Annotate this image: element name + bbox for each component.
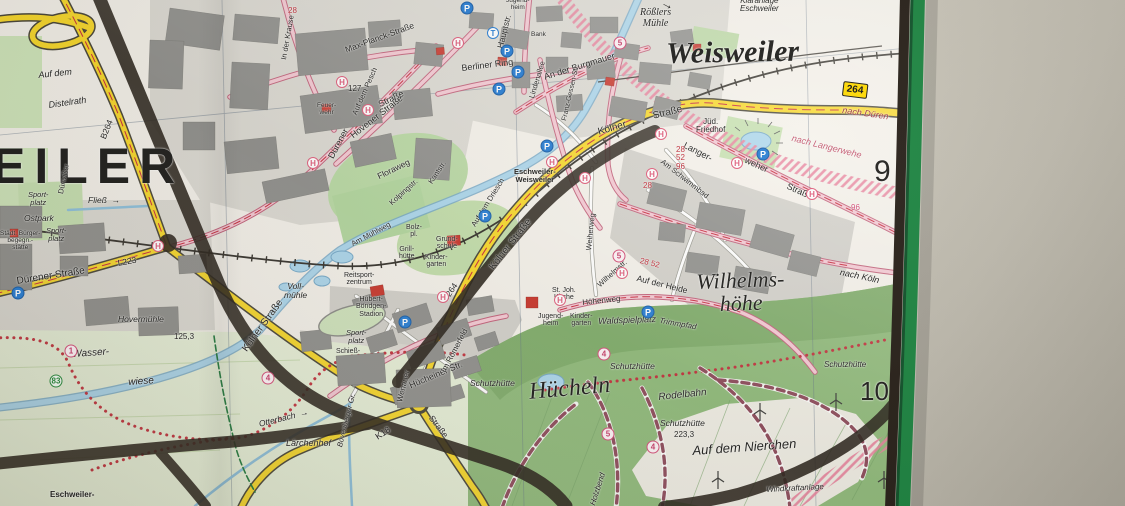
parking-icon: P [541, 140, 554, 153]
road-number-badge: 264 [842, 81, 868, 99]
grid-number-9: 9 [874, 156, 891, 188]
map-label: Langer- [682, 141, 714, 163]
map-label: Hücheiner Str. [408, 360, 464, 391]
parking-icon: P [399, 316, 412, 329]
parking-icon: P [493, 83, 506, 96]
map-label: Eschweiler- [50, 491, 94, 499]
route-badge: 4 [598, 348, 611, 361]
map-label: Rodelbahn [658, 388, 707, 403]
taxi-icon: T [487, 27, 499, 39]
photo-of-street-map: Weisweiler EILER Wilhelms- höhe Hücheln … [0, 0, 1125, 506]
bus-stop-icon: H [616, 267, 628, 279]
bus-stop-icon: H [152, 240, 164, 252]
map-label: Jüd. Friedhof [696, 118, 725, 135]
route-badge: 5 [614, 37, 627, 50]
map-label: Holzbend [589, 472, 607, 506]
map-label: Fließ → [88, 196, 120, 205]
map-label: Höhenweg [582, 295, 621, 307]
route-badge: 5 [602, 428, 615, 441]
map-label: Jugend- heim [538, 313, 563, 328]
route-badge-green: 83 [50, 375, 63, 388]
map-label: Schieß- [336, 348, 360, 355]
map-label: 28 [643, 182, 652, 190]
grid-number-10: 10 [860, 378, 889, 405]
map-label: 28 52 [639, 257, 660, 270]
map-label: Lärchenhof [286, 439, 331, 448]
map-label: 127 [348, 85, 361, 93]
map-label: Hovermühle [118, 315, 164, 324]
map-label: Dürener [327, 127, 351, 160]
bus-stop-icon: H [554, 294, 566, 306]
map-label: Kölner [597, 120, 628, 138]
map-label: Kölner Straße [488, 217, 534, 272]
bus-stop-icon: H [546, 156, 558, 168]
map-label: Sport- platz [46, 227, 66, 243]
map-label: 223,3 [674, 431, 694, 439]
map-label: L223 [117, 256, 137, 268]
map-label: Kölner Straße [241, 298, 286, 354]
bus-stop-icon: H [579, 172, 591, 184]
map-label: In der Krause [280, 15, 296, 61]
map-label: Bovenberger Gr. [336, 392, 357, 447]
bus-stop-icon: H [437, 291, 449, 303]
map-label: Bank [531, 32, 546, 39]
map-label: Lindenallee [528, 60, 547, 99]
bus-stop-icon: H [336, 76, 348, 88]
parking-icon: P [642, 306, 655, 319]
map-label: Sport- platz [28, 191, 48, 207]
map-label: Sport- platz [346, 329, 366, 345]
bus-stop-icon: H [362, 104, 374, 116]
map-label: Voll- mühle [284, 282, 307, 300]
bus-stop-icon: H [646, 168, 658, 180]
map-label: Kantstr. [427, 160, 448, 185]
map-label: Auf dem [38, 67, 72, 80]
map-label: Ostpark [24, 214, 54, 223]
route-badge: 4 [647, 441, 660, 454]
map-label: Am Mühlweg [350, 221, 392, 248]
bus-stop-icon: H [655, 128, 667, 140]
map-label: Distelrath [48, 96, 87, 111]
map-label: Städt. Bürger- begegn.- stätte [0, 231, 40, 251]
map-label: Kolpingstr. [388, 178, 419, 207]
map-label: Otterbach → [258, 408, 309, 429]
route-badge: 1 [65, 345, 78, 358]
map-label: Trimmpfad [659, 317, 698, 332]
bus-stop-icon: H [307, 157, 319, 169]
map-label: Berliner Ring [461, 58, 514, 74]
map-label: Windkraftanlage [766, 483, 824, 494]
map-label: Kläranlage Eschweiler [740, 0, 779, 14]
map-label: Hubert- Böndgen- Stadion [356, 296, 386, 318]
map-label: Kinder- garten [425, 254, 448, 269]
parking-icon: P [12, 287, 25, 300]
map-label: wiese [128, 376, 154, 388]
map-label: Schutzhütte [660, 419, 705, 428]
route-badge: 5 [613, 250, 626, 263]
map-label: Feuer- wehr [317, 103, 336, 117]
bus-stop-icon: H [452, 37, 464, 49]
parking-icon: P [757, 148, 770, 161]
map-label: Jugend- heim [506, 0, 530, 12]
map-label: Straße [652, 105, 684, 122]
map-label: nach Langerwehe [791, 134, 863, 160]
area-label-wilhelmshoehe: Wilhelms- höhe [696, 267, 786, 316]
map-label: Eschweiler- Weisweiler [514, 168, 556, 184]
bus-stop-icon: H [731, 157, 743, 169]
map-label: Reitsport- zentrum [344, 272, 374, 287]
map-label: Max-Planck-Straße [344, 21, 415, 54]
map-label: 125,3 [174, 333, 194, 341]
map-label: Auf der Heide [636, 274, 689, 295]
route-badge: 4 [262, 372, 275, 385]
map-label: Kinder- garten [570, 313, 593, 328]
map-label: Schutzhütte [470, 379, 515, 388]
town-label-eschweiler-partial: EILER [0, 140, 184, 193]
map-label: Schutzhütte [824, 361, 866, 369]
parking-icon: P [512, 66, 525, 79]
map-label: Weiherweg [585, 213, 597, 251]
map-label: Bolz- pl. [406, 224, 422, 239]
map-label: Dürener Straße [16, 266, 86, 287]
map-label: Grill- hütte [399, 246, 415, 261]
map-labels-layer: Weisweiler EILER Wilhelms- höhe Hücheln … [0, 0, 1125, 506]
map-label: nach Düren [842, 106, 889, 122]
map-label: Auf dem Nierchen [692, 437, 797, 458]
map-label: Schutzhütte [610, 362, 655, 371]
map-label: Wasser- [72, 347, 110, 360]
map-label: 96 [851, 204, 860, 212]
map-label: 28 [288, 7, 297, 15]
area-label-huecheln: Hücheln [528, 373, 611, 405]
parking-icon: P [479, 210, 492, 223]
map-label: nach Köln [839, 268, 880, 286]
map-label: Grund- schule [436, 236, 458, 251]
parking-icon: P [461, 2, 474, 15]
map-label: K18 [374, 425, 393, 442]
map-label: Floraweg [376, 158, 411, 181]
town-label-weisweiler: Weisweiler [666, 36, 799, 70]
bus-stop-icon: H [806, 188, 818, 200]
map-label: Straße [427, 414, 450, 440]
parking-icon: P [501, 45, 514, 58]
